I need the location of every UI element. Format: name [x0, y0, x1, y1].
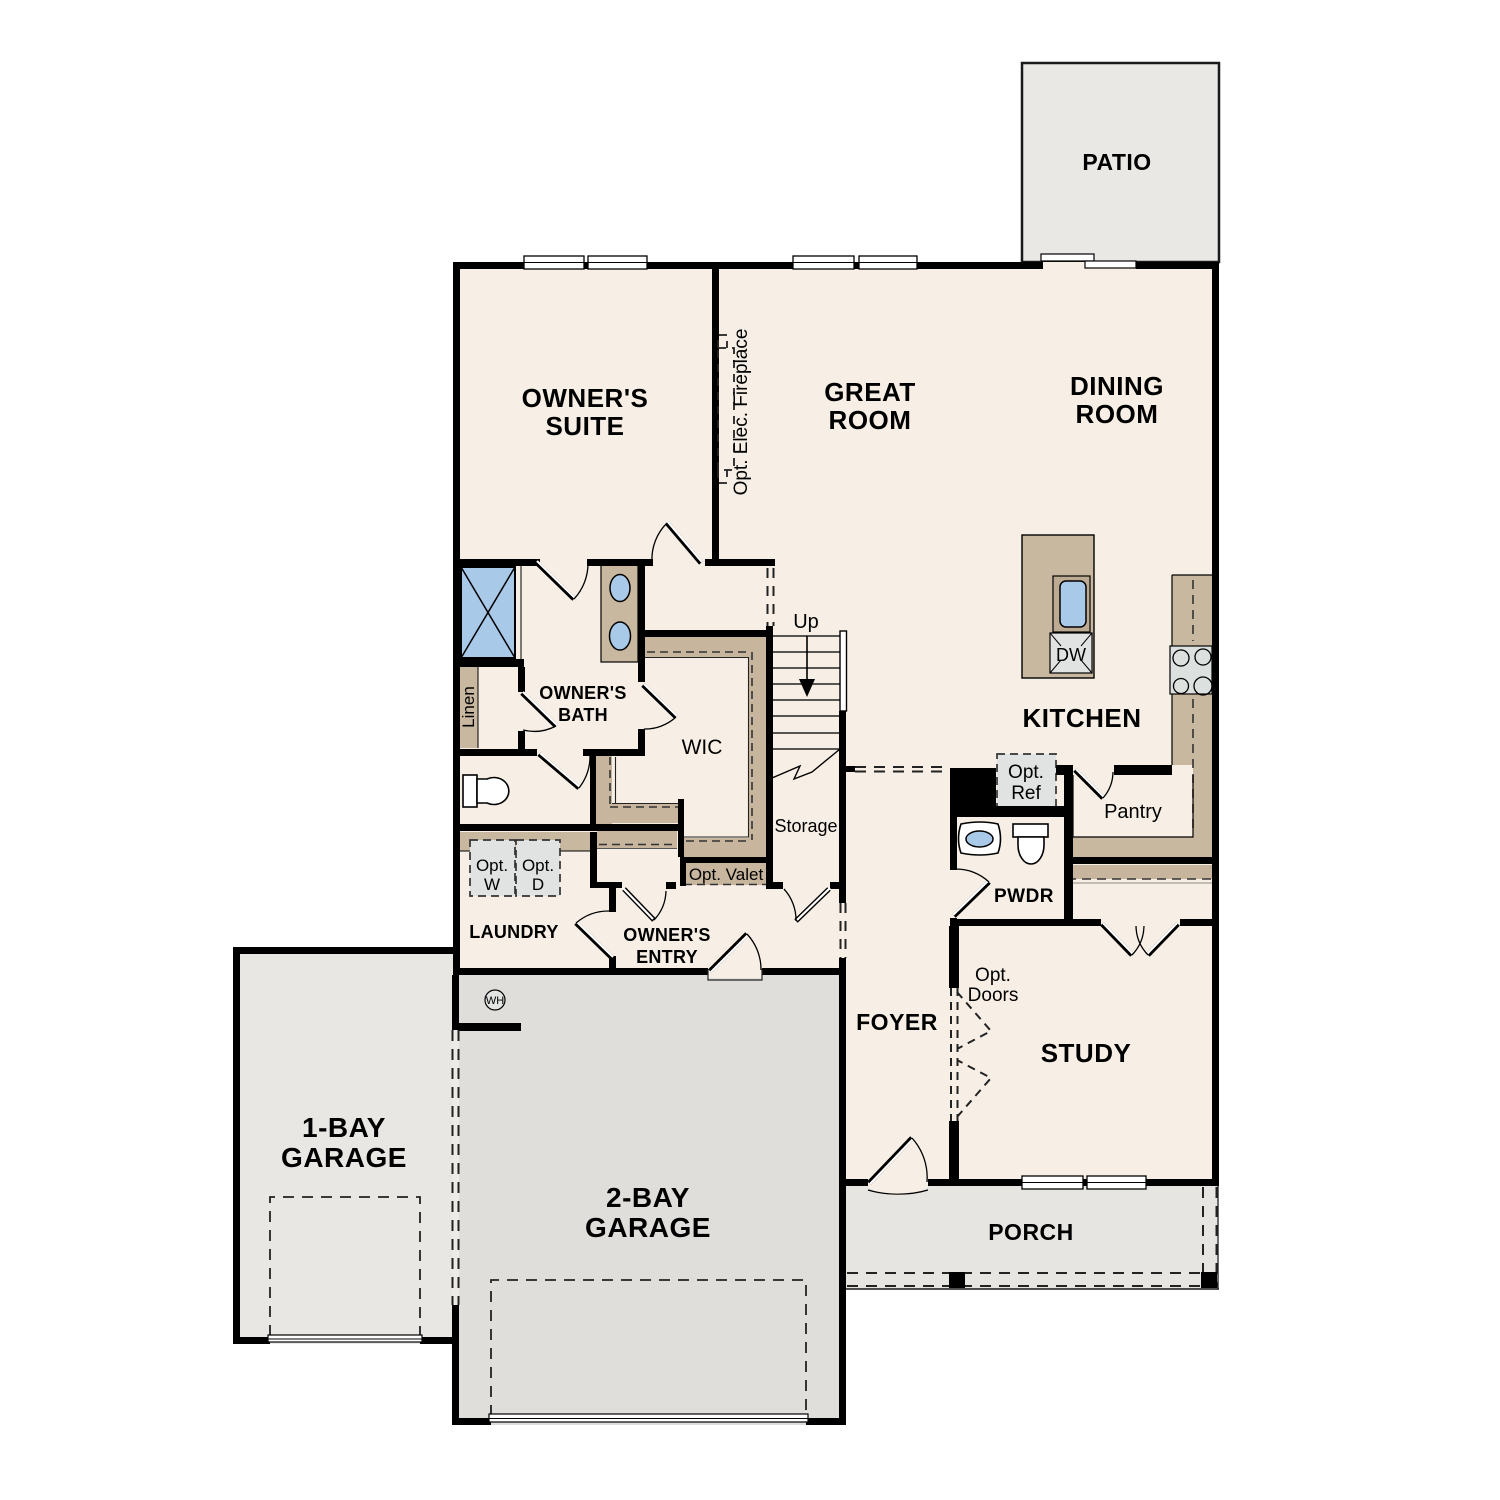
- svg-text:PATIO: PATIO: [1082, 149, 1151, 175]
- svg-text:LAUNDRY: LAUNDRY: [469, 922, 558, 942]
- svg-text:OWNER'S: OWNER'S: [522, 383, 649, 413]
- svg-text:WIC: WIC: [682, 736, 723, 759]
- svg-text:ROOM: ROOM: [829, 405, 912, 435]
- svg-text:OWNER'S: OWNER'S: [539, 683, 626, 703]
- svg-text:Opt. Elec. Fireplace: Opt. Elec. Fireplace: [731, 329, 752, 496]
- svg-text:STUDY: STUDY: [1041, 1038, 1132, 1068]
- svg-text:Doors: Doors: [968, 985, 1019, 1006]
- svg-text:W: W: [484, 875, 500, 894]
- svg-text:OWNER'S: OWNER'S: [623, 925, 710, 945]
- svg-text:Up: Up: [793, 611, 819, 633]
- svg-text:ENTRY: ENTRY: [636, 947, 698, 967]
- svg-text:WH: WH: [486, 995, 504, 1007]
- svg-text:PORCH: PORCH: [988, 1219, 1074, 1245]
- svg-text:DW: DW: [1056, 645, 1086, 665]
- svg-text:Opt.: Opt.: [476, 856, 508, 875]
- svg-text:Ref: Ref: [1011, 783, 1041, 804]
- svg-text:KITCHEN: KITCHEN: [1022, 703, 1141, 733]
- svg-text:SUITE: SUITE: [545, 411, 624, 441]
- svg-text:Opt.: Opt.: [975, 965, 1011, 986]
- svg-text:GREAT: GREAT: [824, 377, 916, 407]
- svg-text:FOYER: FOYER: [856, 1009, 938, 1035]
- svg-text:PWDR: PWDR: [994, 886, 1054, 907]
- svg-text:Opt.: Opt.: [522, 856, 554, 875]
- svg-text:ROOM: ROOM: [1076, 399, 1159, 429]
- svg-text:Opt.: Opt.: [1008, 762, 1044, 783]
- svg-text:1-BAY: 1-BAY: [302, 1112, 386, 1143]
- svg-text:D: D: [532, 875, 544, 894]
- svg-text:BATH: BATH: [558, 705, 608, 725]
- svg-text:Linen: Linen: [459, 686, 478, 728]
- svg-text:Pantry: Pantry: [1104, 801, 1162, 823]
- svg-text:GARAGE: GARAGE: [281, 1142, 407, 1173]
- svg-text:2-BAY: 2-BAY: [606, 1182, 690, 1213]
- svg-text:Opt. Valet: Opt. Valet: [689, 865, 764, 884]
- svg-text:DINING: DINING: [1070, 371, 1164, 401]
- svg-text:GARAGE: GARAGE: [585, 1212, 711, 1243]
- svg-text:Storage: Storage: [774, 816, 837, 836]
